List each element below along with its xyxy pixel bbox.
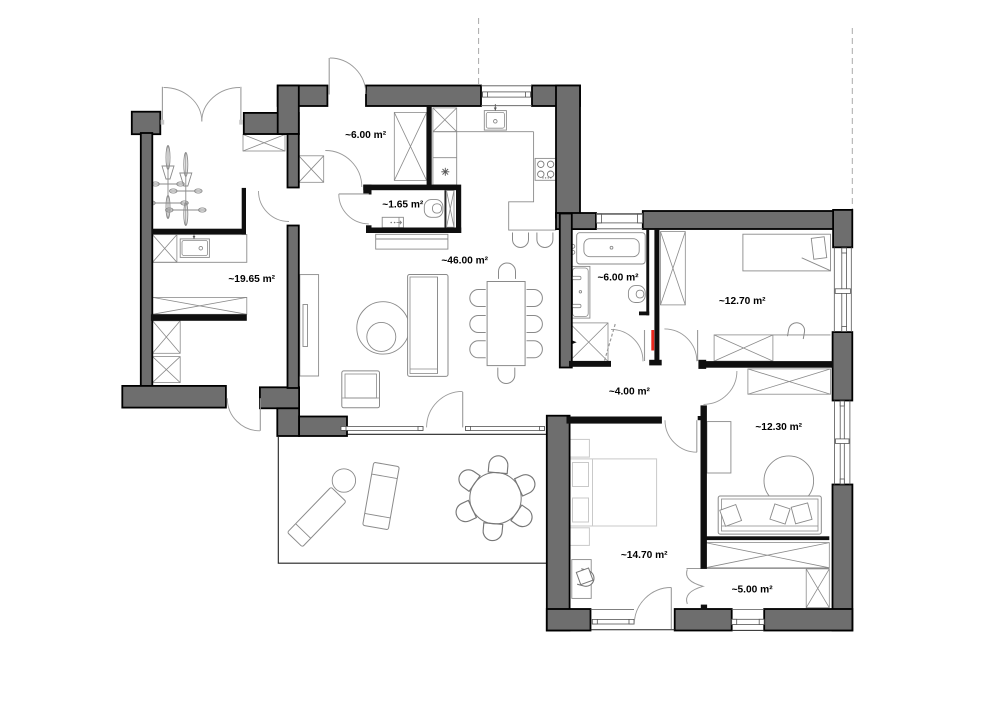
svg-text:~12.30 m²: ~12.30 m² xyxy=(755,422,802,433)
svg-text:~14.70 m²: ~14.70 m² xyxy=(621,550,668,561)
svg-text:~5.00 m²: ~5.00 m² xyxy=(732,585,774,596)
svg-text:~6.00 m²: ~6.00 m² xyxy=(345,130,387,141)
svg-text:~46.00 m²: ~46.00 m² xyxy=(441,256,488,267)
svg-text:~4.00 m²: ~4.00 m² xyxy=(609,387,651,398)
svg-text:~12.70 m²: ~12.70 m² xyxy=(719,296,766,307)
svg-text:~1.65 m²: ~1.65 m² xyxy=(382,199,424,210)
svg-text:~19.65 m²: ~19.65 m² xyxy=(228,274,275,285)
svg-text:~6.00 m²: ~6.00 m² xyxy=(597,272,639,283)
